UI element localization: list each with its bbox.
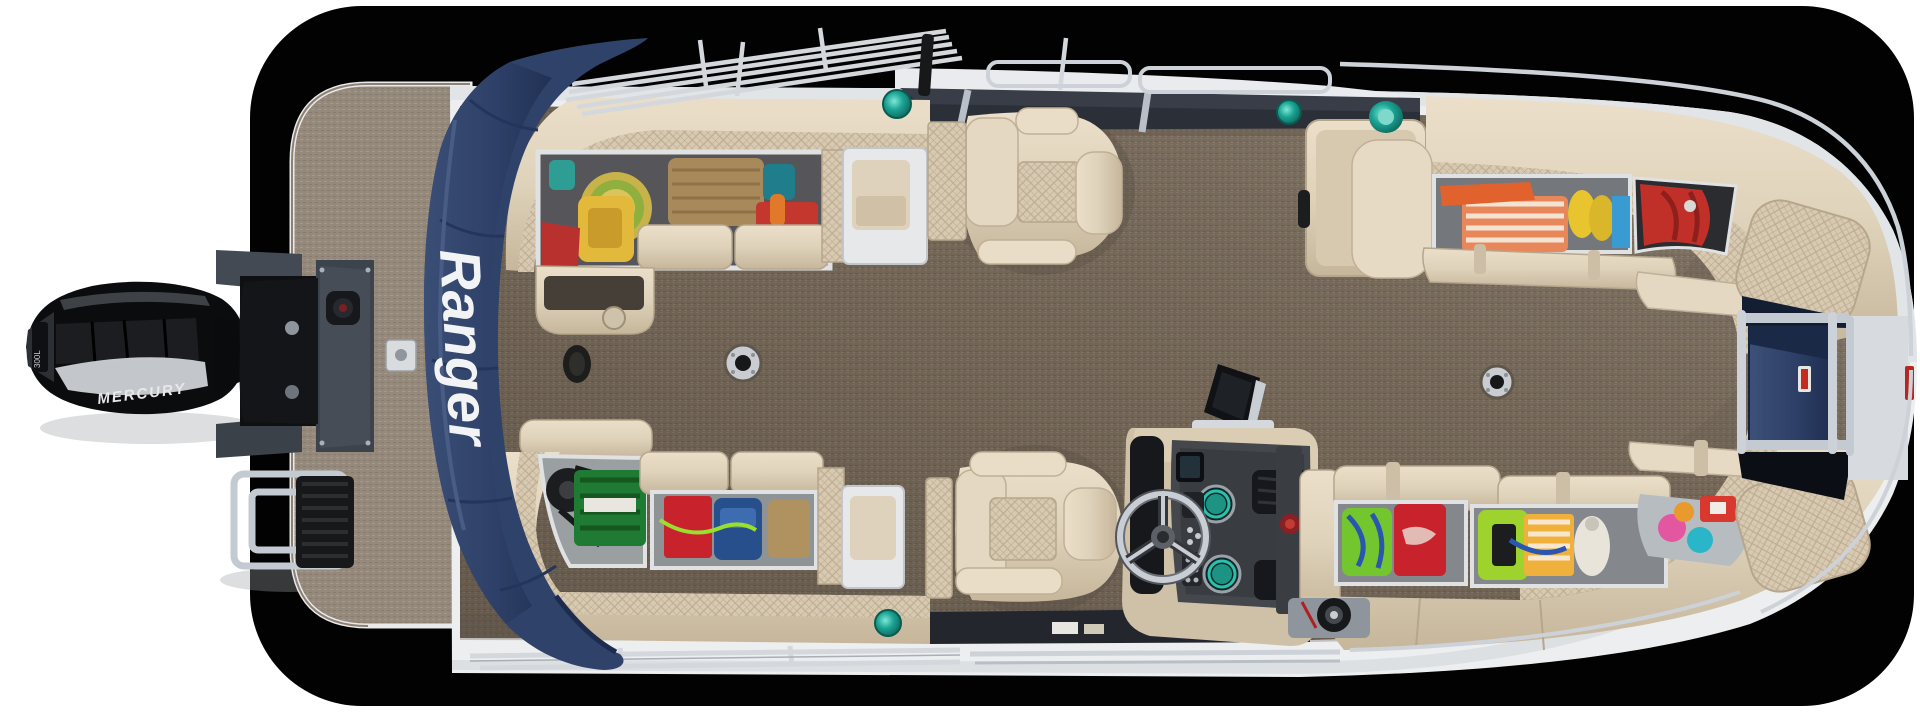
svg-text:Ranger: Ranger [427,247,501,449]
svg-text:300L: 300L [33,350,42,368]
